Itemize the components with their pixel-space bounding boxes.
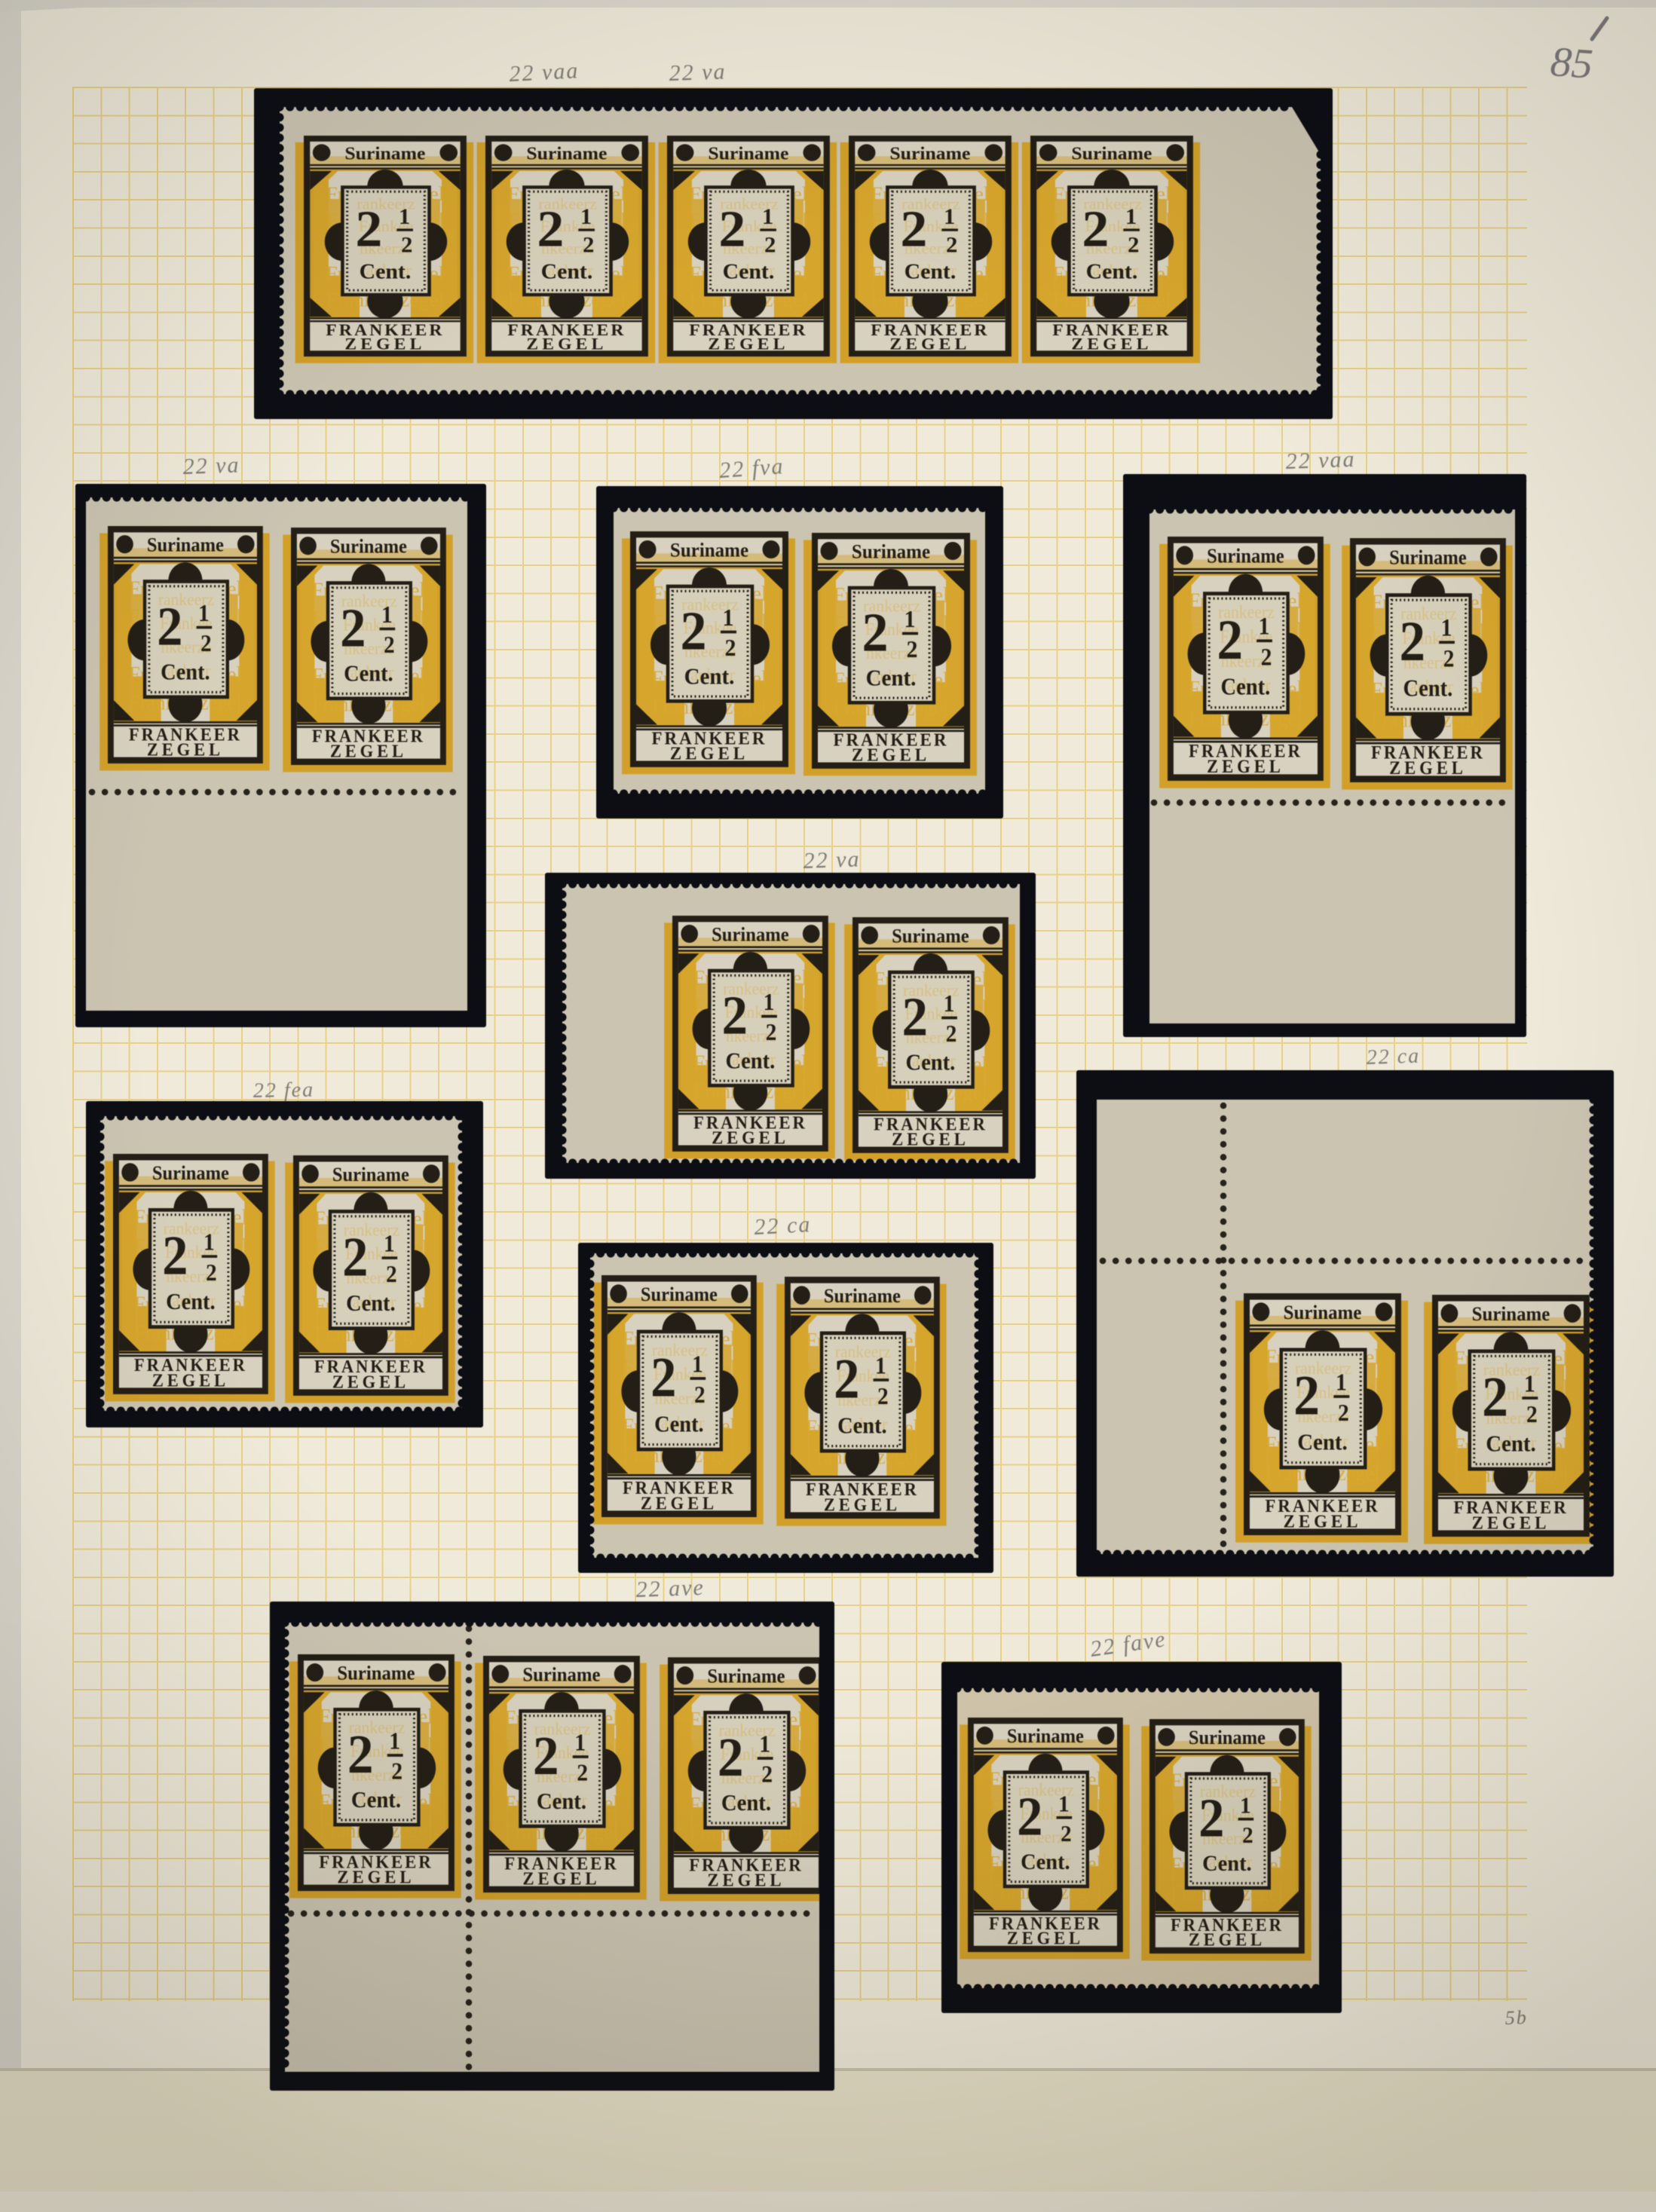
svg-text:22 vaa: 22 vaa: [1285, 447, 1356, 474]
svg-text:5b: 5b: [1504, 2006, 1528, 2029]
svg-text:22 ave: 22 ave: [635, 1575, 705, 1602]
svg-text:22 va: 22 va: [669, 59, 727, 86]
svg-text:22 fea: 22 fea: [253, 1078, 315, 1103]
svg-text:22 vaa: 22 vaa: [509, 58, 580, 87]
svg-text:22 fva: 22 fva: [718, 454, 785, 483]
svg-text:22 va: 22 va: [803, 846, 861, 873]
svg-text:22 ca: 22 ca: [1366, 1045, 1420, 1069]
svg-text:22 fave: 22 fave: [1088, 1626, 1168, 1662]
svg-text:85: 85: [1549, 38, 1594, 88]
svg-text:22 va: 22 va: [182, 452, 240, 479]
svg-text:22 ca: 22 ca: [754, 1212, 812, 1240]
